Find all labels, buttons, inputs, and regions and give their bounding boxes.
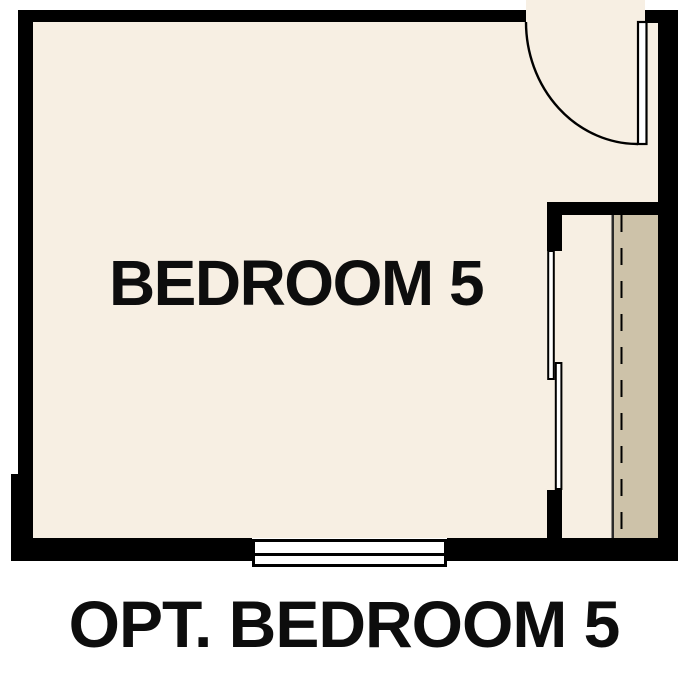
closet-bypass-door-panel-outer xyxy=(548,251,554,379)
doorway-floor xyxy=(526,0,645,21)
wall-right xyxy=(658,10,678,561)
window xyxy=(252,541,447,566)
wall-top xyxy=(18,10,526,22)
wall-left-upper xyxy=(18,10,33,474)
closet-shelf-area xyxy=(613,215,658,538)
entry-door-leaf xyxy=(638,22,647,144)
floor-plan-page: BEDROOM 5 OPT. BEDROOM 5 xyxy=(0,0,687,687)
closet-wall-stub-lower xyxy=(547,490,562,539)
wall-bottom-right xyxy=(447,538,678,561)
plan-caption: OPT. BEDROOM 5 xyxy=(69,587,620,661)
closet-shelf-edge-line xyxy=(612,215,615,538)
closet-wall-top xyxy=(547,202,658,215)
closet-bypass-door-panel-inner xyxy=(556,363,562,489)
closet-wall-stub-upper xyxy=(547,214,562,251)
floor-plan-drawing: BEDROOM 5 OPT. BEDROOM 5 xyxy=(0,0,687,687)
room-label: BEDROOM 5 xyxy=(109,247,483,319)
wall-bottom-left xyxy=(11,538,252,561)
